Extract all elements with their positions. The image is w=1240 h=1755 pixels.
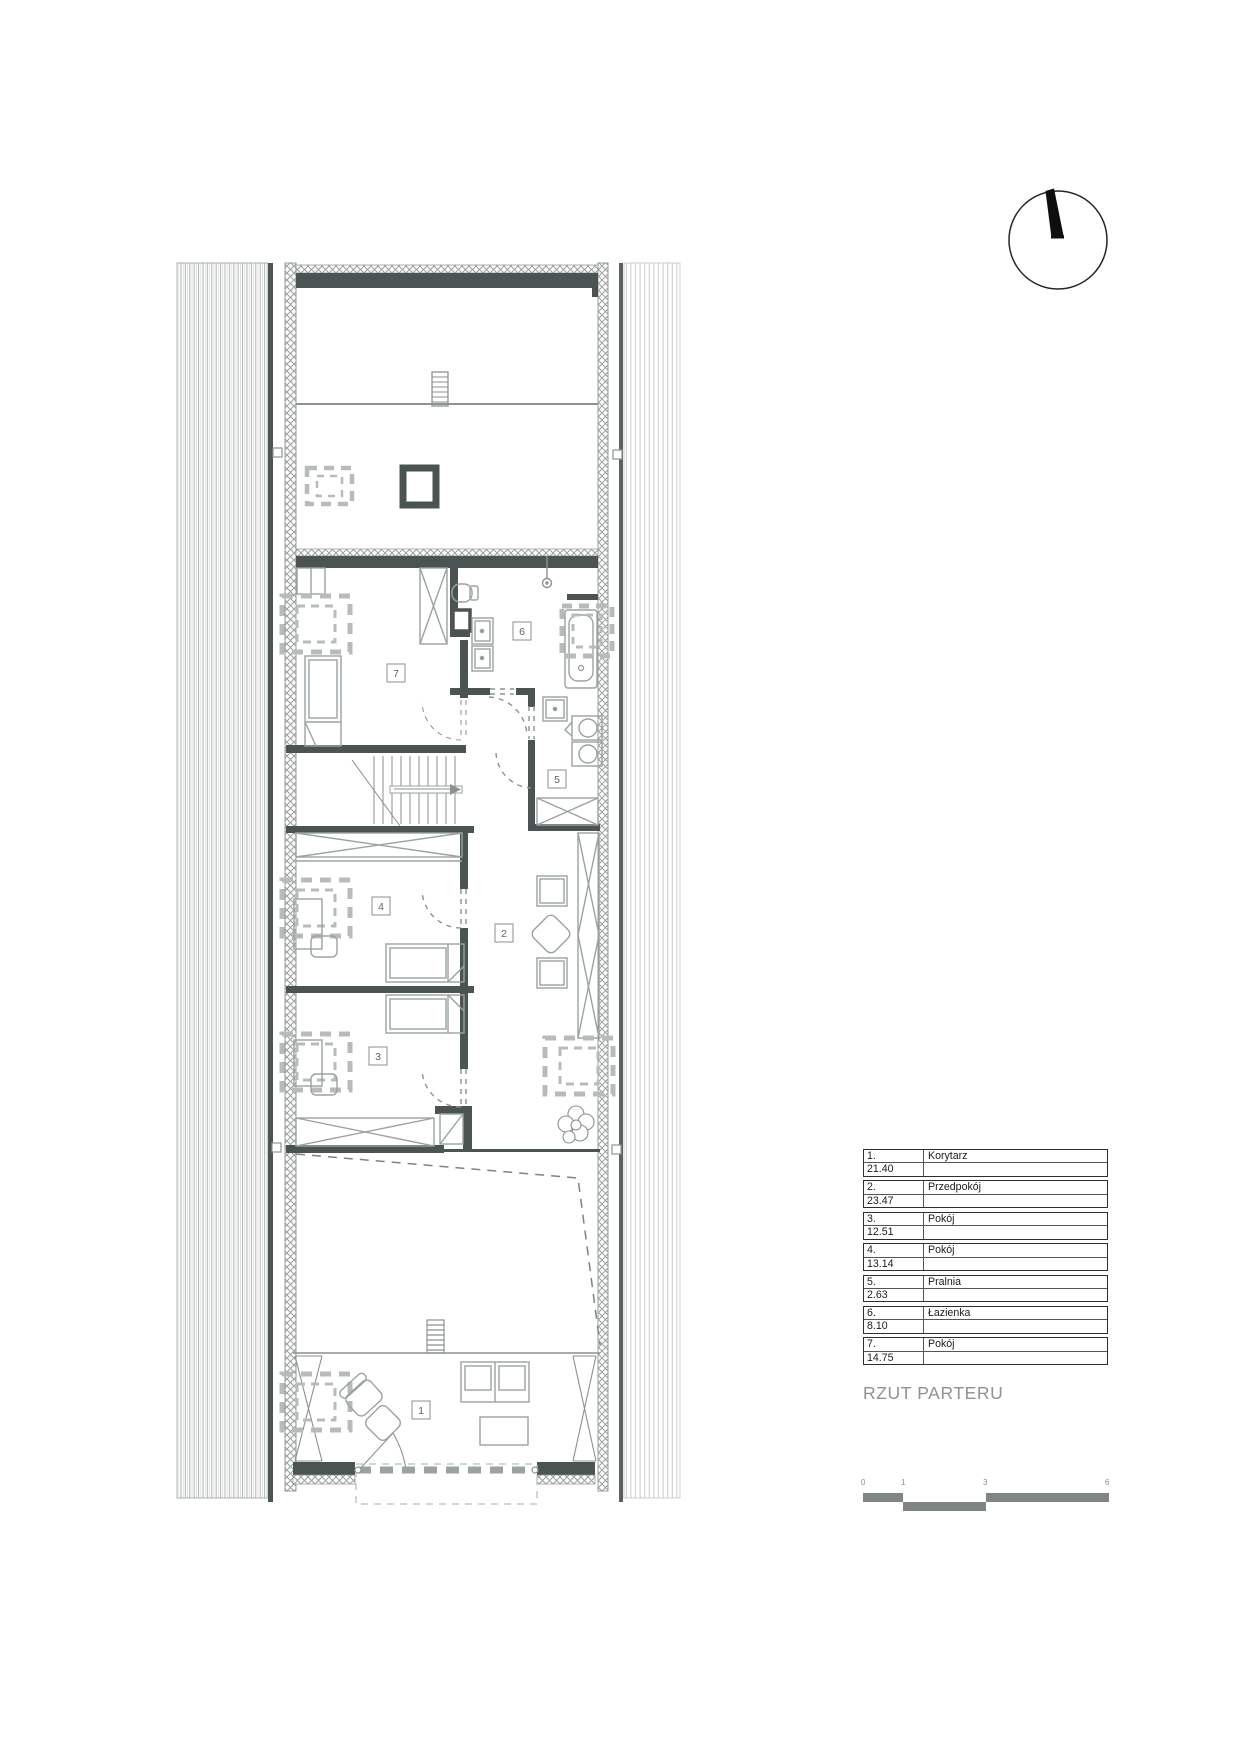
- room-area: 12.51: [864, 1226, 924, 1238]
- deck-left: [177, 263, 273, 1502]
- room-3: [282, 995, 466, 1146]
- staircase: [352, 700, 466, 826]
- room-name: Pokój: [924, 1213, 1107, 1225]
- terrace-section: [296, 372, 598, 505]
- sink-cabinets-icon: [472, 618, 493, 671]
- room-area: 13.14: [864, 1258, 924, 1270]
- column-brace-right: [573, 1356, 596, 1461]
- wardrobe-x-room3: [296, 1118, 434, 1146]
- svg-text:5: 5: [554, 774, 560, 786]
- entry-door-swing: [358, 1433, 406, 1471]
- armchair-icon: [338, 1372, 385, 1419]
- ladder-icon-top: [432, 372, 448, 406]
- bathtub-icon: [565, 610, 597, 688]
- washer-dryer-icon: [565, 716, 602, 766]
- wall-niche: [453, 610, 470, 631]
- wardrobe-x-room4: [296, 833, 462, 861]
- scale-tick-1: 1: [901, 1478, 905, 1487]
- room-number: 5.: [864, 1276, 924, 1288]
- double-desk-icon: [461, 1362, 529, 1402]
- wall-stub: [567, 594, 598, 600]
- table-row: 7.Pokój 14.75: [863, 1337, 1108, 1365]
- skylight-dashed: [307, 468, 352, 504]
- room-number: 1.: [864, 1150, 924, 1162]
- door-swing-room3: [422, 1069, 466, 1107]
- exterior-wall-left: [285, 263, 296, 1491]
- door-swing-laundry: [489, 689, 534, 788]
- scale-segment-0-1: [863, 1493, 903, 1502]
- svg-text:2: 2: [501, 928, 507, 940]
- room-name: Przedpokój: [924, 1181, 1107, 1193]
- table-row: 2.Przedpokój 23.47: [863, 1180, 1108, 1208]
- table-row: 3.Pokój 12.51: [863, 1212, 1108, 1240]
- north-arrow-icon: [1009, 189, 1107, 290]
- scale-segment-1-3: [903, 1502, 986, 1511]
- structural-walls: [286, 265, 600, 1484]
- room-7: [282, 568, 478, 746]
- bed-icon-room7: [305, 656, 341, 746]
- room-number: 2.: [864, 1181, 924, 1193]
- room-number: 4.: [864, 1244, 924, 1256]
- room-name: Korytarz: [924, 1150, 1107, 1162]
- svg-text:3: 3: [375, 1051, 381, 1063]
- wardrobe-icon-room7: [420, 568, 447, 644]
- chimney: [403, 468, 436, 505]
- shower-icon: [440, 1114, 463, 1144]
- svg-text:7: 7: [393, 668, 399, 680]
- roof-outline-dashed: [296, 1154, 600, 1345]
- plant-icon: [558, 1106, 594, 1143]
- room-label-7: 7: [387, 664, 405, 682]
- room-number: 7.: [864, 1338, 924, 1350]
- ladder-icon-bottom: [427, 1320, 444, 1353]
- room-area: 2.63: [864, 1289, 924, 1301]
- room-name: Pokój: [924, 1338, 1107, 1350]
- floor-plan-sheet: 7 6 5 4 2 3 1 1.Ko: [0, 0, 1240, 1755]
- room-name: Pralnia: [924, 1276, 1107, 1288]
- scale-tick-6: 6: [1105, 1478, 1109, 1487]
- table-row: 1.Korytarz 21.40: [863, 1149, 1108, 1177]
- door-swing-room7: [422, 700, 466, 740]
- room-number: 3.: [864, 1213, 924, 1225]
- room-name: Łazienka: [924, 1307, 1107, 1319]
- room-area: 23.47: [864, 1195, 924, 1207]
- table-row: 4.Pokój 13.14: [863, 1243, 1108, 1271]
- svg-text:4: 4: [378, 901, 384, 913]
- room-label-1: 1: [412, 1401, 430, 1419]
- ottoman-icon-living: [363, 1403, 403, 1443]
- room-area: 8.10: [864, 1320, 924, 1332]
- room-area: 21.40: [864, 1163, 924, 1175]
- sliding-glass-door: [355, 1464, 538, 1504]
- floor-plan-drawing: 7 6 5 4 2 3 1: [0, 0, 1240, 1755]
- door-swing-room4: [422, 889, 466, 928]
- room-name: Pokój: [924, 1244, 1107, 1256]
- room-label-6: 6: [513, 622, 531, 640]
- svg-text:6: 6: [519, 626, 525, 638]
- room-label-2: 2: [495, 924, 513, 942]
- laundry-sink-icon: [543, 697, 567, 721]
- table-row: 5.Pralnia 2.63: [863, 1275, 1108, 1303]
- table-row: 6.Łazienka 8.10: [863, 1306, 1108, 1334]
- bed-icon-room4: [386, 944, 464, 982]
- chair-room4: [311, 936, 337, 957]
- scale-tick-0: 0: [861, 1478, 865, 1487]
- bathroom-6: [472, 556, 612, 688]
- scale-tick-3: 3: [983, 1478, 987, 1487]
- bed-icon-room3: [386, 995, 464, 1033]
- room-label-3: 3: [369, 1047, 387, 1065]
- page-title: RZUT PARTERU: [863, 1383, 1003, 1404]
- room-label-5: 5: [548, 770, 566, 788]
- side-table-bottom: [537, 958, 567, 988]
- deck-right: [619, 263, 680, 1502]
- room-legend-table: 1.Korytarz 21.40 2.Przedpokój 23.47 3.Po…: [863, 1149, 1108, 1369]
- side-table-top: [537, 876, 567, 906]
- room-label-4: 4: [372, 897, 390, 915]
- room-number: 6.: [864, 1307, 924, 1319]
- laundry-5: [489, 689, 602, 825]
- ottoman-diamond: [530, 913, 572, 955]
- svg-text:1: 1: [418, 1405, 424, 1417]
- cabinet-x-laundry: [537, 798, 598, 825]
- wardrobe-x-hall: [578, 833, 599, 1038]
- room-area: 14.75: [864, 1352, 924, 1364]
- coffee-table-icon: [480, 1417, 528, 1445]
- scale-segment-3-6: [986, 1493, 1109, 1502]
